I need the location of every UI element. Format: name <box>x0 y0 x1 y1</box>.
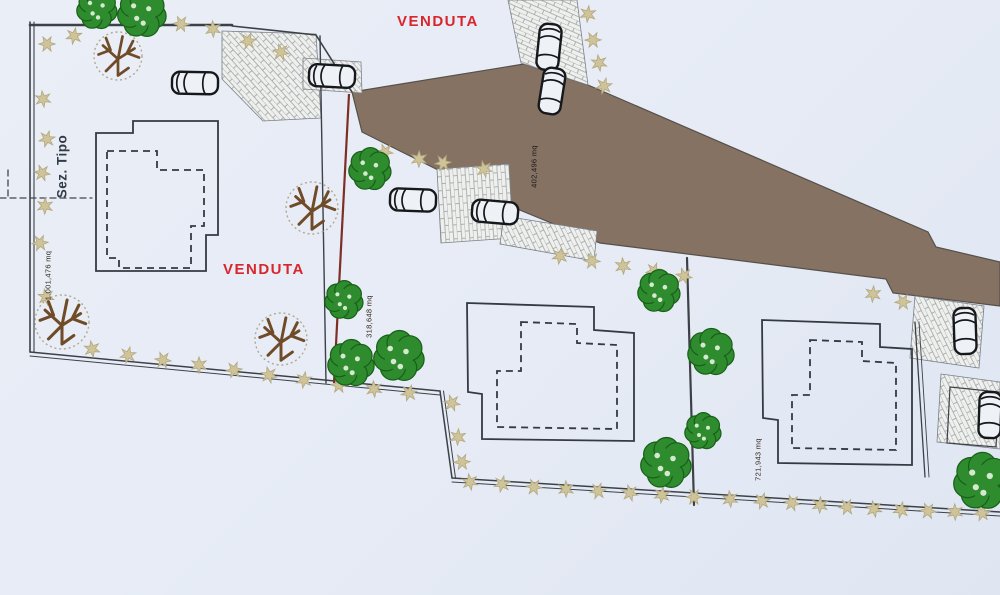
shrub-icon <box>33 165 51 182</box>
venduta-label-top: VENDUTA <box>397 13 479 30</box>
area-measurement-middle: 318,648 mq <box>365 282 374 352</box>
shrub-icon <box>491 473 513 495</box>
shrub-icon <box>944 502 965 522</box>
tree-icon <box>374 331 424 381</box>
bare-tree-icon <box>286 182 338 234</box>
tree-icon <box>349 148 391 190</box>
house-a-inner-dashed <box>107 151 204 268</box>
shrub-icon <box>583 29 604 50</box>
car-icon <box>172 72 218 95</box>
car-icon <box>390 188 437 212</box>
shrub-icon <box>862 283 884 304</box>
shrub-icon <box>202 19 223 39</box>
house-b-inner-dashed <box>497 322 617 429</box>
area-measurement-road: 402,496 mq <box>530 132 539 202</box>
car-icon <box>953 308 977 355</box>
shrub-icon <box>293 369 315 390</box>
shrub-icon <box>63 25 85 46</box>
shrub-icon <box>33 89 54 108</box>
bare-tree-icon <box>94 32 142 80</box>
shrub-icon <box>172 16 189 31</box>
shrub-icon <box>188 355 209 375</box>
site-plan-drawing <box>0 0 1000 595</box>
tree-icon <box>685 413 721 449</box>
site-plan-canvas: VENDUTA VENDUTA Sez. Tipo 1.001,476 mq 4… <box>0 0 1000 595</box>
shrub-icon <box>589 53 610 72</box>
car-icon <box>308 64 355 88</box>
shrub-icon <box>837 496 858 518</box>
shrub-icon <box>525 479 543 495</box>
car-icon <box>536 23 563 71</box>
shrub-icon <box>613 256 634 276</box>
section-type-label: Sez. Tipo <box>55 122 70 212</box>
house-c-inner-dashed <box>792 340 896 450</box>
shrub-icon <box>82 339 102 358</box>
shrub-icon <box>919 503 937 519</box>
car-icon <box>471 199 519 225</box>
shrub-icon <box>39 37 55 51</box>
tree-icon <box>118 0 166 36</box>
venduta-label-left: VENDUTA <box>223 261 305 278</box>
shrub-icon <box>577 3 599 24</box>
tree-icon <box>325 281 363 319</box>
shrub-icon <box>34 196 55 217</box>
car-icon <box>978 392 1000 439</box>
tree-icon <box>638 270 680 312</box>
house-a-outer <box>96 121 218 271</box>
area-measurement-left: 1.001,476 mq <box>44 241 53 311</box>
tree-icon <box>688 329 734 375</box>
tree-icon <box>954 452 1000 508</box>
sold-parcel-boundary-line <box>334 94 349 383</box>
shrub-icon <box>460 473 480 492</box>
area-measurement-right: 721,943 mq <box>754 425 763 495</box>
bare-tree-icon <box>255 313 307 365</box>
tree-icon <box>641 438 691 488</box>
